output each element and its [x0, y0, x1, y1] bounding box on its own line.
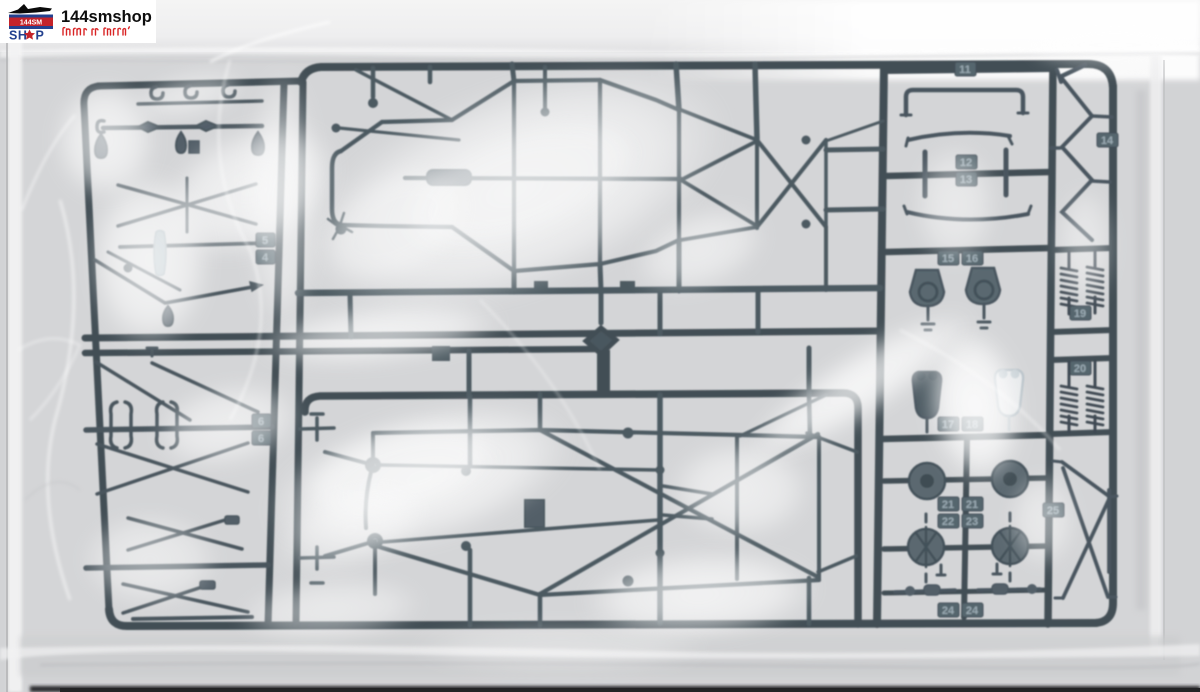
svg-text:144SM: 144SM — [20, 20, 42, 27]
svg-text:144smshop: 144smshop — [61, 8, 152, 26]
svg-text:SH: SH — [9, 29, 27, 43]
svg-text:P: P — [36, 29, 44, 43]
